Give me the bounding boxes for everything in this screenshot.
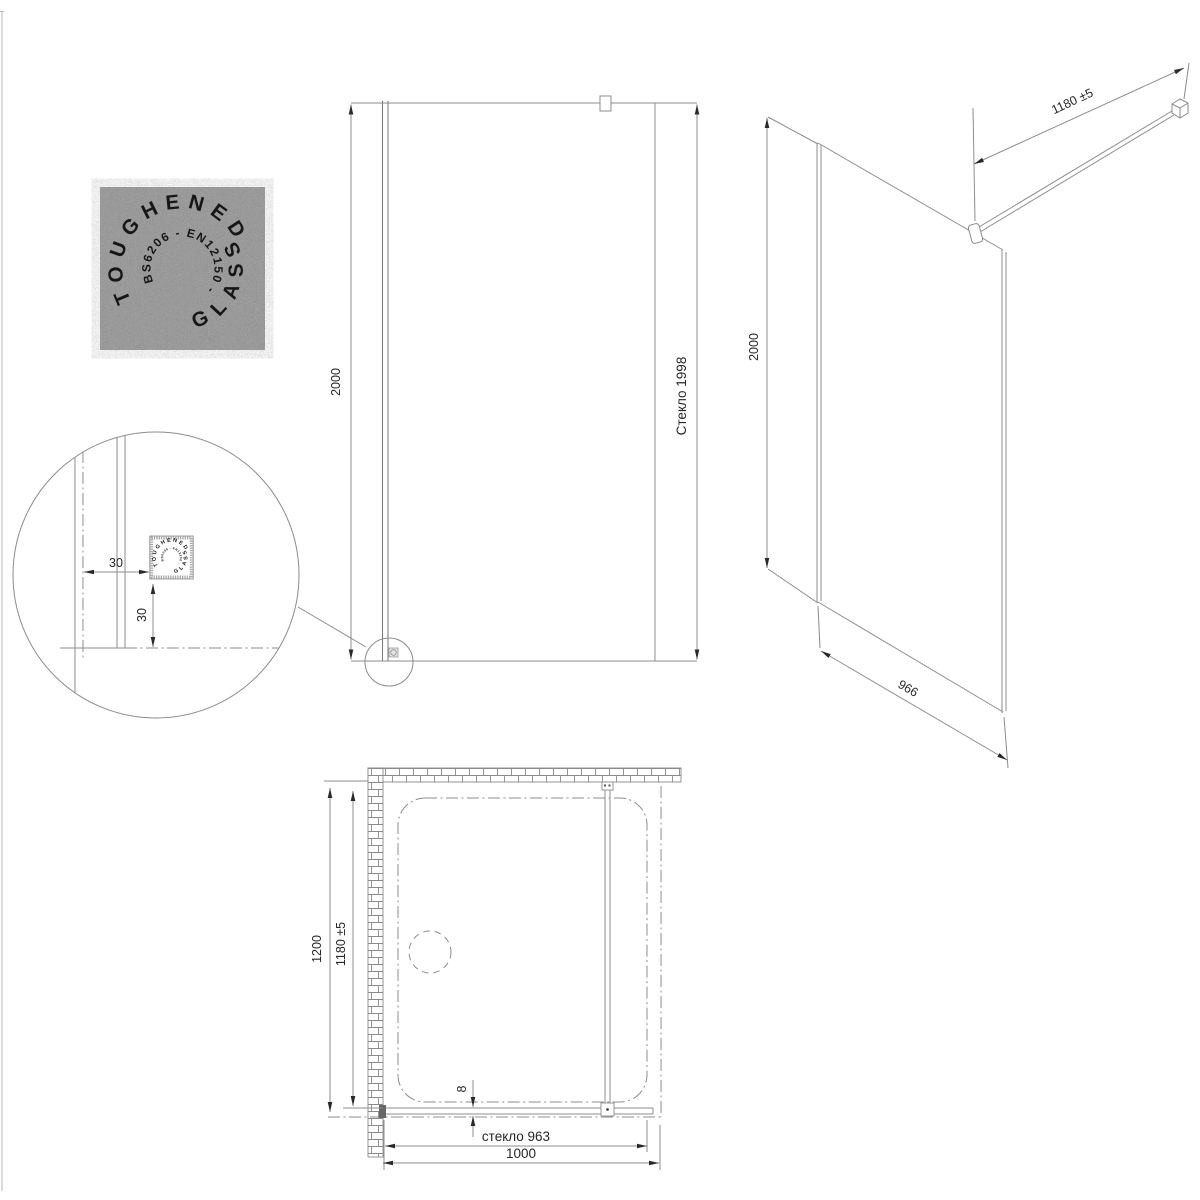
detail-offset-y-label: 30 [135,608,149,622]
detail-offset-x-label: 30 [109,556,123,570]
stamp-marker-tiny [389,648,398,657]
iso-wall-fitting [1172,99,1188,118]
detail-view: TOUGHENED GLASS BS6206 - EN12150 - 30 30 [13,430,299,720]
stamp-marker-detail: TOUGHENED GLASS BS6206 - EN12150 - [150,536,193,579]
plan-view: 1200 1180 ±5 8 стекло 963 1000 [310,768,681,1170]
iso-width-ext-left [818,606,820,648]
technical-drawing-page: TOUGHENED GLASS BS6206 - EN12150 - 2000 … [0,0,1200,1200]
iso-height-ext-top [768,117,818,144]
iso-bar-dimension-line [974,68,1184,164]
page-edge-line [0,12,4,1192]
plan-opening-width-dim-label: 1000 [506,1146,536,1161]
iso-view: 2000 1180 ±5 966 [747,63,1189,768]
certification-stamp: TOUGHENED GLASS BS6206 - EN12150 - [100,187,265,350]
detail-callout-circle [365,638,413,686]
iso-bar-dim-label: 1180 ±5 [1049,86,1095,117]
iso-support-bar-bottom [980,115,1174,232]
plan-wall-profile [379,1105,386,1118]
iso-height-ext-bottom [768,569,818,603]
plan-wall-left [368,768,383,1157]
plan-drain [409,931,451,973]
iso-width-ext-right [1004,717,1008,768]
plan-thickness-dim-label: 8 [455,1085,469,1092]
drawing-canvas: TOUGHENED GLASS BS6206 - EN12150 - 2000 … [0,0,1200,1200]
plan-glass-depth-dim-label: 1180 ±5 [334,922,348,966]
iso-width-dimension-line [821,651,1007,760]
plan-wall-top [368,768,681,782]
top-support-bracket [600,96,611,111]
iso-height-dim-label: 2000 [747,333,761,361]
plan-wall-bracket [602,782,613,790]
plan-glass-clamp [601,1103,614,1116]
iso-support-bar-top [979,111,1172,227]
front-height-dim-label: 2000 [329,368,343,396]
plan-glass-width-dim-label: стекло 963 [482,1129,550,1144]
detail-leader-line [298,607,366,647]
plan-depth-dim-label: 1200 [310,935,324,963]
iso-bar-ext-right [1184,63,1189,99]
front-glass-height-dim-label: Стекло 1998 [674,357,689,436]
front-view: 2000 Стекло 1998 [298,96,697,686]
iso-bar-ext-left [973,108,975,221]
